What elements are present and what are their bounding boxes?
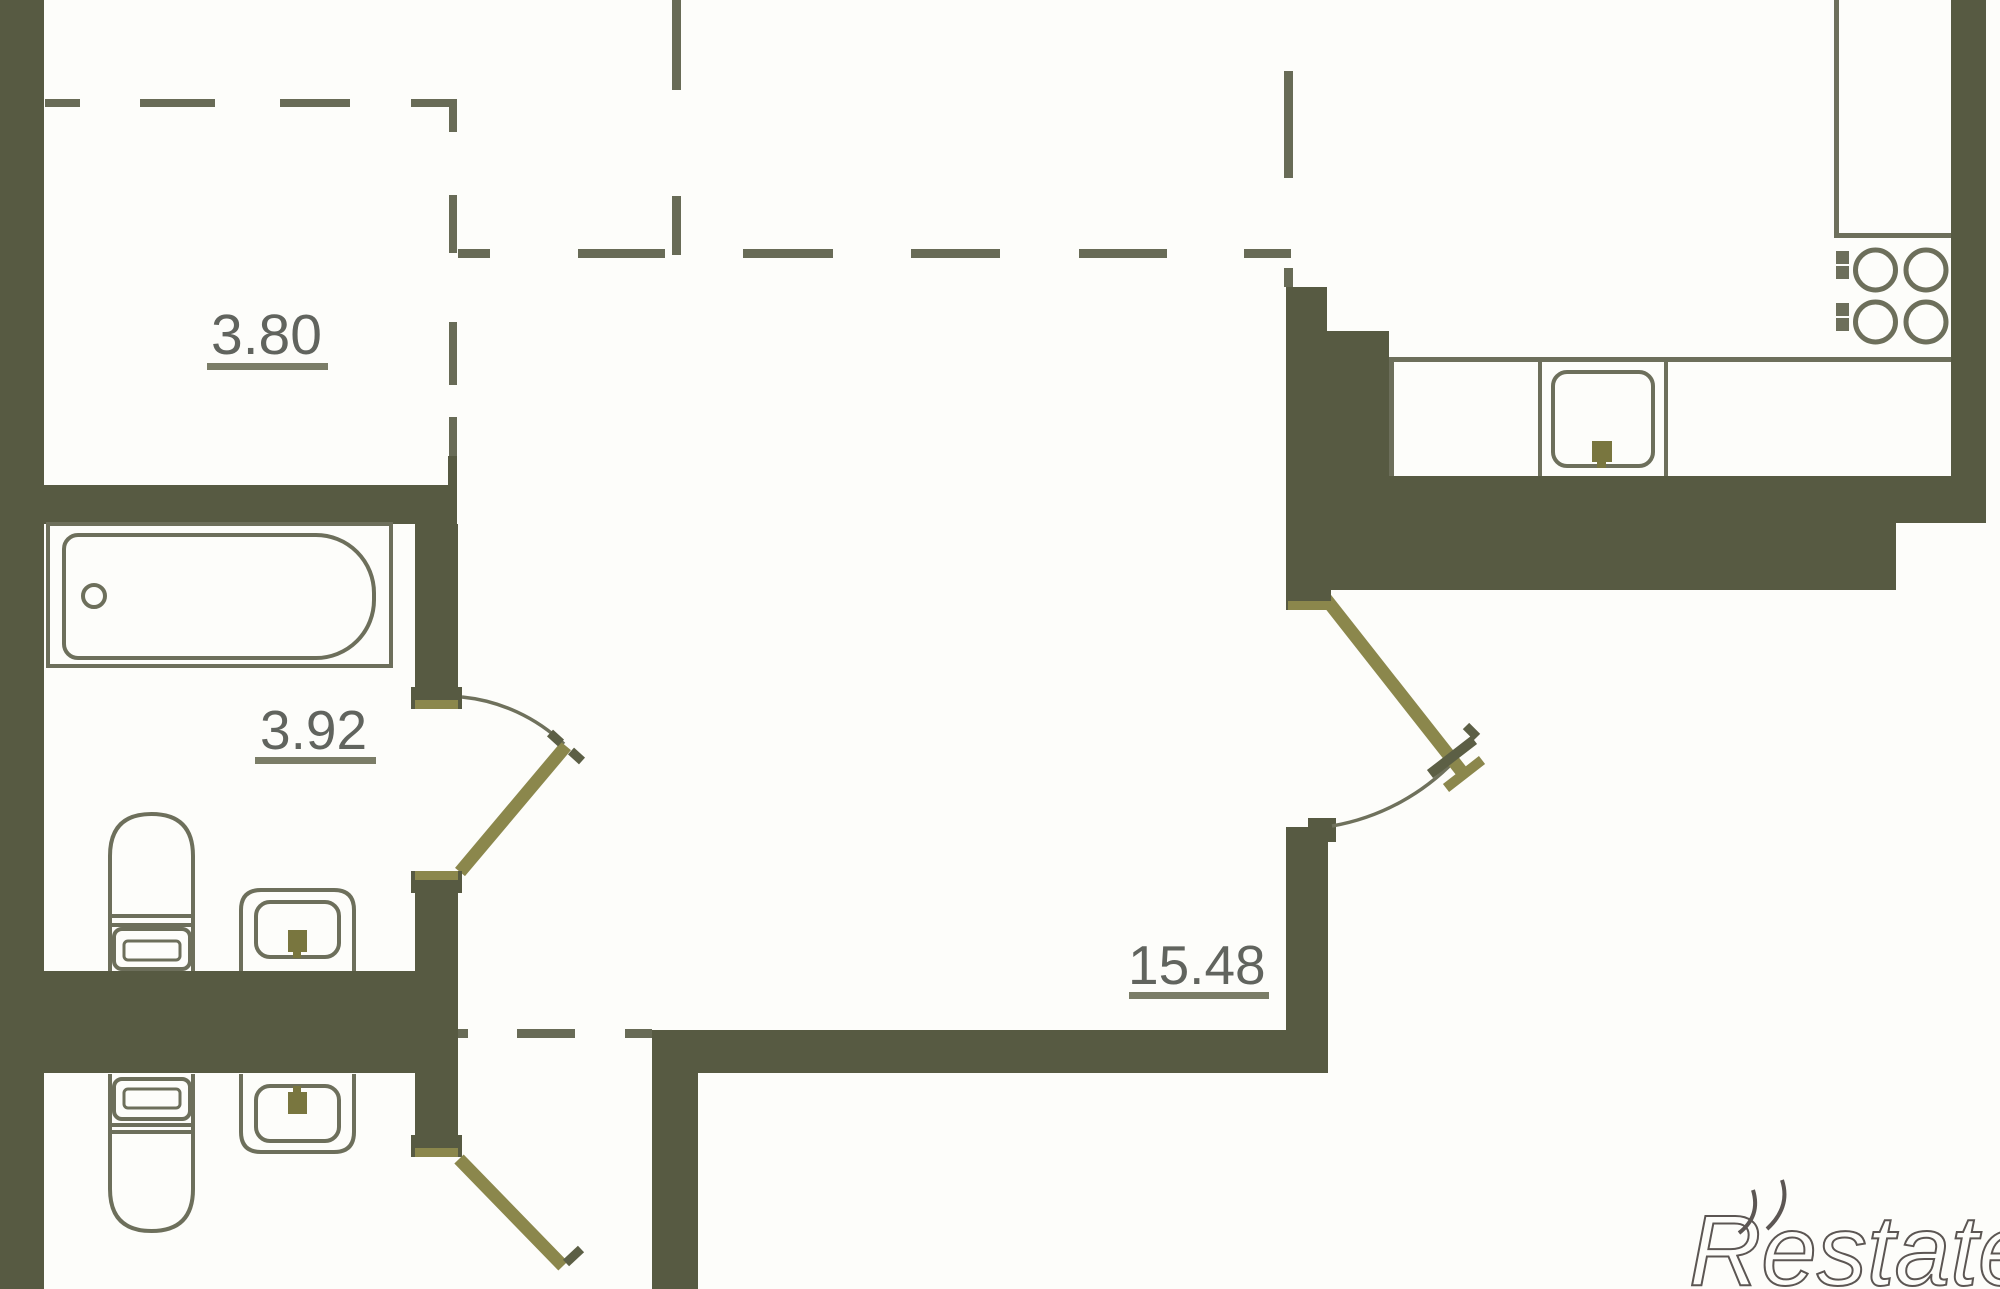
svg-text:3.92: 3.92 xyxy=(260,699,367,761)
svg-text:Restate: Restate xyxy=(1689,1195,2000,1289)
svg-text:3.80: 3.80 xyxy=(211,303,322,367)
svg-text:15.48: 15.48 xyxy=(1128,934,1266,996)
